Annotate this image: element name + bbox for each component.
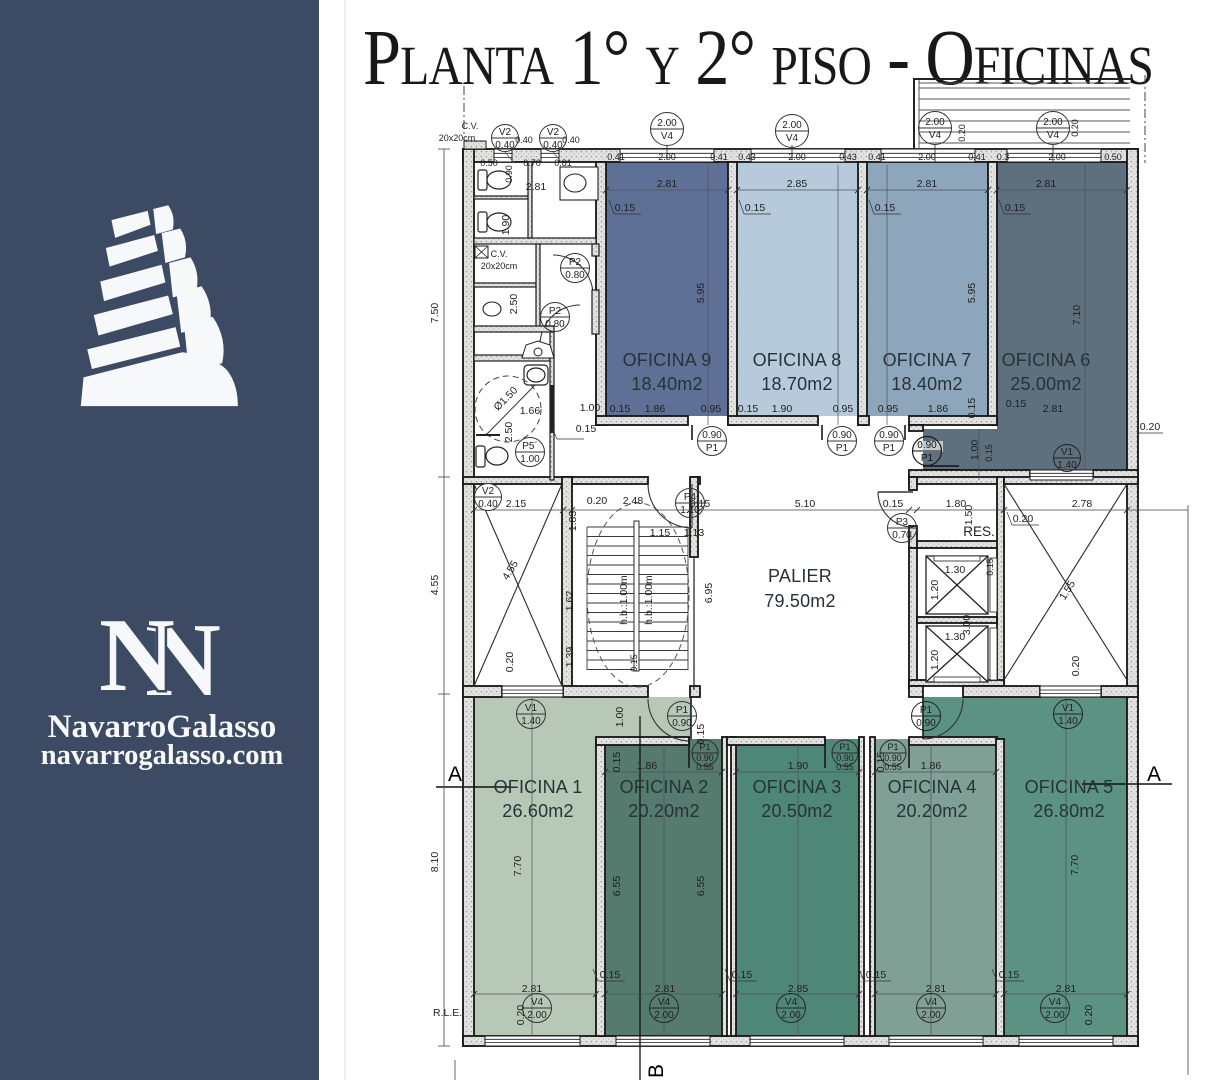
svg-text:2.00: 2.00 [654,1010,674,1021]
svg-text:0.70: 0.70 [892,530,912,541]
svg-text:4.55: 4.55 [429,575,441,596]
svg-text:0.15: 0.15 [1006,398,1027,410]
svg-text:V4: V4 [1049,997,1062,1008]
svg-text:2.50: 2.50 [503,422,515,443]
svg-text:2.00: 2.00 [527,1010,547,1021]
svg-text:2.00: 2.00 [782,120,802,131]
svg-text:V1: V1 [525,703,538,714]
svg-text:A: A [1147,763,1161,786]
svg-text:5.95: 5.95 [695,283,707,304]
svg-text:0.41: 0.41 [968,152,986,162]
svg-text:6.55: 6.55 [695,876,707,897]
svg-text:0.55: 0.55 [696,762,714,772]
svg-text:0.95: 0.95 [701,403,722,415]
svg-text:0.50: 0.50 [480,158,498,168]
svg-text:0.80: 0.80 [545,319,565,330]
svg-text:7.10: 7.10 [1071,305,1083,326]
svg-text:8.10: 8.10 [429,852,441,873]
svg-text:20x20cm: 20x20cm [481,261,518,271]
svg-text:0.15: 0.15 [966,398,978,419]
svg-text:0.90: 0.90 [879,430,899,441]
svg-text:0.20: 0.20 [1140,421,1161,433]
svg-text:18.40m2: 18.40m2 [631,374,702,394]
svg-text:2.15: 2.15 [506,498,527,510]
svg-text:1.90: 1.90 [772,403,793,415]
svg-text:0.90: 0.90 [702,430,722,441]
svg-text:2.81: 2.81 [1036,178,1057,190]
svg-text:2.81: 2.81 [917,178,938,190]
svg-text:6.55: 6.55 [611,876,623,897]
svg-text:0.15: 0.15 [866,969,887,981]
svg-text:0.70: 0.70 [523,158,541,168]
svg-text:0.20: 0.20 [587,495,608,507]
svg-text:2.00: 2.00 [788,152,806,162]
svg-text:0.43: 0.43 [839,152,857,162]
svg-text:2.78: 2.78 [1072,498,1093,510]
svg-text:0.15: 0.15 [984,444,994,462]
svg-text:Planta 1° y 2° piso - Oficinas: Planta 1° y 2° piso - Oficinas [363,15,1153,102]
svg-text:V4: V4 [786,133,799,144]
svg-text:0.15: 0.15 [732,969,753,981]
svg-text:1.30: 1.30 [945,564,966,576]
svg-text:A: A [448,763,462,786]
svg-text:0.50: 0.50 [1104,152,1122,162]
svg-text:1.15: 1.15 [650,527,671,539]
svg-text:0.41: 0.41 [710,152,728,162]
svg-text:7.70: 7.70 [1069,855,1081,876]
svg-text:2.00: 2.00 [1043,117,1063,128]
svg-text:0.15: 0.15 [610,403,631,415]
svg-text:79.50m2: 79.50m2 [764,591,835,611]
svg-text:P1: P1 [839,742,850,752]
svg-text:0.15: 0.15 [745,202,766,214]
svg-text:0.90: 0.90 [832,430,852,441]
svg-text:0.40: 0.40 [478,499,498,510]
svg-text:1.20: 1.20 [929,650,941,671]
svg-text:0.20: 0.20 [1070,119,1080,137]
svg-text:1.83: 1.83 [567,511,579,532]
svg-text:20.50m2: 20.50m2 [761,801,832,821]
svg-text:R.L.E.: R.L.E. [433,1007,462,1019]
svg-text:1.86: 1.86 [928,403,949,415]
svg-text:2.00: 2.00 [918,152,936,162]
svg-text:0.80: 0.80 [565,270,585,281]
svg-text:OFICINA 6: OFICINA 6 [1002,350,1091,370]
svg-text:0.15: 0.15 [1005,202,1026,214]
svg-text:P2: P2 [569,257,582,268]
svg-text:0.15: 0.15 [600,969,621,981]
svg-text:P1: P1 [699,742,710,752]
svg-text:B: B [645,1064,668,1078]
svg-text:P1: P1 [887,742,898,752]
svg-text:0.95: 0.95 [833,403,854,415]
svg-text:P4: P4 [684,492,697,503]
svg-text:N: N [99,596,175,713]
svg-text:navarrogalasso.com: navarrogalasso.com [41,740,284,771]
svg-text:1.40: 1.40 [1058,716,1078,727]
svg-text:20.20m2: 20.20m2 [896,801,967,821]
svg-text:0.55: 0.55 [836,762,854,772]
svg-text:0.15: 0.15 [875,202,896,214]
svg-text:RES.: RES. [963,524,995,539]
svg-text:V4: V4 [785,997,798,1008]
svg-text:h.b.:1.00m: h.b.:1.00m [618,575,630,625]
svg-text:P1: P1 [920,705,933,716]
svg-text:0.43: 0.43 [738,152,756,162]
svg-text:OFICINA 9: OFICINA 9 [623,350,712,370]
svg-text:0.90: 0.90 [504,165,514,183]
svg-text:0.90: 0.90 [672,718,692,729]
svg-text:7.50: 7.50 [429,303,441,324]
svg-text:25.00m2: 25.00m2 [1010,374,1081,394]
svg-text:0.15: 0.15 [611,752,623,773]
svg-text:1.20: 1.20 [929,580,941,601]
svg-text:1.00: 1.00 [580,402,601,414]
svg-text:3.00: 3.00 [961,615,973,636]
svg-text:1.86: 1.86 [645,403,666,415]
svg-text:2.81: 2.81 [1043,403,1064,415]
svg-text:OFICINA 5: OFICINA 5 [1025,777,1114,797]
svg-text:2.00: 2.00 [921,1010,941,1021]
svg-text:V2: V2 [499,127,512,138]
svg-text:V2: V2 [547,127,560,138]
svg-text:0.40: 0.40 [543,140,563,151]
svg-text:18.40m2: 18.40m2 [891,374,962,394]
svg-text:0.20: 0.20 [1013,513,1034,525]
svg-text:18.70m2: 18.70m2 [761,374,832,394]
svg-text:0.90: 0.90 [917,440,937,451]
svg-text:0.90: 0.90 [916,718,936,729]
svg-text:0.15: 0.15 [738,403,759,415]
svg-text:P1: P1 [836,443,849,454]
svg-text:0.95: 0.95 [878,403,899,415]
svg-text:2.50: 2.50 [508,294,520,315]
svg-text:26.80m2: 26.80m2 [1033,801,1104,821]
svg-text:1.13: 1.13 [684,527,705,539]
svg-text:2.00: 2.00 [781,1010,801,1021]
svg-text:1.66: 1.66 [520,405,541,417]
svg-text:0.15: 0.15 [615,202,636,214]
svg-text:1.40: 1.40 [521,716,541,727]
svg-text:0.41: 0.41 [868,152,886,162]
svg-text:0.20: 0.20 [1070,656,1082,677]
svg-text:2.85: 2.85 [787,178,808,190]
svg-text:P5´: P5´ [522,440,538,452]
svg-text:0.55: 0.55 [884,762,902,772]
svg-text:C.V.: C.V. [491,249,508,259]
svg-text:2.00: 2.00 [1048,152,1066,162]
svg-text:1.40: 1.40 [1057,460,1077,471]
svg-text:5.95: 5.95 [966,283,978,304]
svg-text:1.90: 1.90 [500,215,512,236]
svg-text:1.86: 1.86 [921,760,942,772]
svg-text:OFICINA 3: OFICINA 3 [753,777,842,797]
svg-text:1.39: 1.39 [564,647,576,668]
svg-text:0.15: 0.15 [883,498,904,510]
svg-text:1.10: 1.10 [680,505,700,516]
svg-text:OFICINA 4: OFICINA 4 [888,777,977,797]
svg-text:C.V.: C.V. [462,121,479,131]
svg-text:0.41: 0.41 [607,152,625,162]
svg-text:V2: V2 [482,486,495,497]
svg-text:V1: V1 [1062,703,1075,714]
svg-text:1.00: 1.00 [614,707,626,728]
svg-text:V1: V1 [1061,447,1074,458]
svg-text:0.81: 0.81 [554,158,572,168]
svg-text:2.00: 2.00 [657,118,677,129]
svg-text:1.86: 1.86 [637,760,658,772]
svg-text:V4: V4 [661,131,674,142]
svg-text:PALIER: PALIER [768,566,832,586]
svg-text:1.90: 1.90 [788,760,809,772]
svg-text:V4: V4 [925,997,938,1008]
svg-text:V4: V4 [1047,130,1060,141]
svg-text:26.60m2: 26.60m2 [502,801,573,821]
svg-text:7.70: 7.70 [512,856,524,877]
svg-text:2.81: 2.81 [1056,983,1077,995]
svg-text:0.20: 0.20 [504,652,516,673]
svg-text:2.81: 2.81 [657,178,678,190]
svg-text:P3: P3 [896,517,909,528]
svg-text:P1: P1 [883,443,896,454]
svg-text:OFICINA 8: OFICINA 8 [753,350,842,370]
svg-text:2.00: 2.00 [925,117,945,128]
svg-text:P1: P1 [921,453,934,464]
svg-text:0.15: 0.15 [999,969,1020,981]
svg-text:2.48: 2.48 [623,495,644,507]
svg-text:P1: P1 [706,443,719,454]
svg-text:OFICINA 1: OFICINA 1 [494,777,583,797]
svg-text:0.20: 0.20 [957,124,967,142]
svg-text:0.15: 0.15 [576,423,597,435]
svg-text:h.b.:1.00m: h.b.:1.00m [643,575,655,625]
svg-text:1.50: 1.50 [963,505,975,526]
svg-text:5.10: 5.10 [795,498,816,510]
svg-text:V4: V4 [929,130,942,141]
svg-text:P1: P1 [676,705,689,716]
svg-text:P2: P2 [549,306,562,317]
svg-text:1.00: 1.00 [520,454,540,465]
svg-text:1.00: 1.00 [969,440,981,461]
svg-text:0.20: 0.20 [1083,1005,1095,1026]
svg-text:6.95: 6.95 [703,583,715,604]
svg-text:0.15: 0.15 [629,654,639,672]
svg-text:0.3: 0.3 [997,152,1010,162]
svg-text:V4: V4 [658,997,671,1008]
svg-text:V4: V4 [531,997,544,1008]
svg-text:OFICINA 7: OFICINA 7 [883,350,972,370]
svg-text:0.40: 0.40 [495,140,515,151]
svg-text:0.15: 0.15 [985,558,995,576]
svg-text:2.81: 2.81 [526,181,547,193]
svg-text:2.00: 2.00 [1045,1010,1065,1021]
svg-text:1.62: 1.62 [564,591,576,612]
